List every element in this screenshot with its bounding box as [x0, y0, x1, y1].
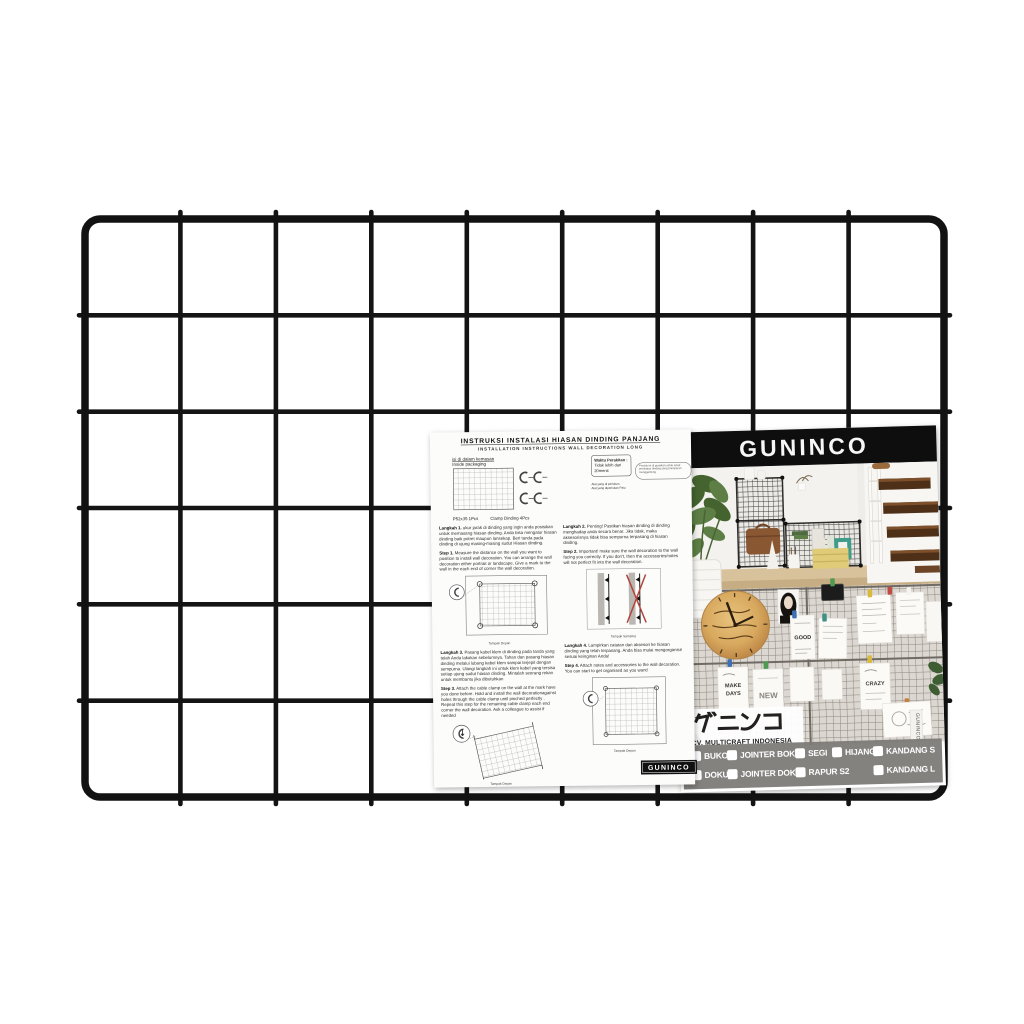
step-1-en: Step 1. Measure the distance on the wall… — [439, 549, 557, 572]
checkbox-icon — [873, 746, 883, 756]
checkbox-icon — [727, 750, 737, 760]
assembly-time-box: Waktu Perakitan : Tidak lebih dari 20men… — [591, 455, 631, 477]
variant-label: RAPUR S2 — [808, 766, 849, 777]
brand-logo-text: GUNINCO — [739, 432, 869, 463]
sheet-header: INSTRUKSI INSTALASI HIASAN DINDING PANJA… — [430, 429, 691, 452]
card-crazy-text: CRAZY — [866, 681, 885, 688]
variant-band: BUKO JOINTER BOKU SEGI HIJANG KANDANG S … — [683, 738, 943, 789]
variant-label: BUKO — [704, 750, 728, 761]
step-2-en-label: Step 2. — [563, 549, 577, 554]
instruction-sheet: INSTRUKSI INSTALASI HIASAN DINDING PANJA… — [430, 429, 695, 787]
step-2-id: Langkah 2. Penting! Pastikan hiasan dind… — [563, 523, 681, 546]
sheet-column-right: Langkah 2. Penting! Pastikan hiasan dind… — [563, 523, 684, 789]
sheet-footer-logo-text: GUNINCO — [642, 762, 695, 774]
sheet-footer-logo: GUNINCO — [641, 760, 697, 775]
step-1-id: Langkah 1. ukur jarak di dinding yang in… — [439, 524, 557, 547]
step-3-en-label: Step 3. — [441, 686, 455, 691]
sheet-title-en: INSTALLATION INSTRUCTIONS WALL DECORATIO… — [430, 444, 691, 452]
tools-line-2: Alat yang diperlukan Palu — [592, 486, 692, 491]
variant-doku: DOKU — [691, 769, 728, 780]
diagram3-caption: Tampak Depan — [442, 781, 560, 786]
variant-label: JOINTER DOKU — [740, 767, 801, 779]
usage-note-oval: Produk ini di gunakan untuk sekat pembat… — [635, 462, 691, 480]
side-tag: GUNINCO — [910, 710, 923, 740]
step-3-en: Step 3. Attach the cable clamp on the wa… — [441, 685, 559, 719]
variant-label: JOINTER BOKU — [740, 748, 801, 760]
assembly-time-value: Tidak lebih dari 20menit — [594, 463, 621, 473]
assembly-time-label: Waktu Perakitan : — [594, 458, 627, 463]
step-4-en: Step 4. Attach notes and accessories to … — [565, 661, 683, 673]
step-1-en-text: Measure the distance on the wall you wan… — [439, 549, 551, 571]
checkbox-icon — [832, 747, 842, 757]
step-3-id: Langkah 3. Pasang kabel klem di dinding … — [440, 649, 558, 683]
variant-label: DOKU — [704, 769, 728, 780]
diagram1-caption: Tampak Depan — [440, 641, 558, 646]
step-4-en-text: Attach notes and accessories to the wall… — [565, 661, 680, 673]
card-days-text: DAYS — [726, 691, 741, 697]
step-3-en-text: Attach the cable clamp on the wall at th… — [441, 685, 556, 718]
sheet-column-left: Langkah 1. ukur jarak di dinding yang in… — [439, 524, 560, 790]
packaging-captions: P52x35 1Pcs Clamp Dinding 4Pcs — [453, 515, 601, 522]
diagram2-caption: Tampak Samping — [564, 634, 682, 639]
checkbox-icon — [727, 769, 737, 779]
tools-note: Alat yang di perlukan Alat yang diperluk… — [591, 481, 691, 491]
room-scene: GOOD — [672, 461, 945, 748]
card-new-text: NEW — [759, 691, 778, 701]
variant-segi: SEGI — [795, 748, 827, 759]
checkbox-icon — [795, 767, 805, 777]
variant-label: SEGI — [808, 748, 827, 759]
lifestyle-photo: GOOD — [672, 461, 945, 748]
checkbox-icon — [873, 765, 883, 775]
diagram-step2: Tampak Samping — [564, 567, 683, 639]
diagram-step4: Tampak Depan — [565, 676, 684, 754]
product-photo: INSTRUKSI INSTALASI HIASAN DINDING PANJA… — [0, 0, 1024, 1024]
brand-photo-card: GUNINCO — [671, 425, 946, 792]
variant-hijang: HIJANG — [832, 746, 876, 757]
packaging-diagram — [452, 465, 568, 512]
packaging-section: isi di dalam kemasan Inside packaging — [452, 454, 692, 521]
variant-rapur-s2: RAPUR S2 — [795, 766, 849, 777]
variant-label: KANDANG L — [886, 764, 935, 775]
note-good-text: GOOD — [794, 635, 811, 641]
clamp-caption: Clamp Dinding 4Pcs — [490, 515, 529, 520]
step-2-en: Step 2. Important! make sure the wall de… — [563, 548, 681, 566]
diagram-step1: Tampak Depan — [440, 574, 559, 646]
diagram-step3: Tampak Depan — [441, 720, 560, 786]
brand-jp-glyphs — [691, 710, 784, 735]
step-1-en-label: Step 1. — [439, 550, 453, 555]
step-4-id: Langkah 4. Lampirkan catatan dan aksesor… — [564, 642, 682, 660]
panel-caption: P52x35 1Pcs — [453, 516, 478, 521]
variant-jointer-boku: JOINTER BOKU — [727, 748, 801, 760]
variant-kandang-s: KANDANG S — [873, 745, 935, 757]
clamp-icons — [520, 472, 542, 503]
step-2-en-text: Important! make sure the wall decoration… — [563, 548, 678, 565]
staircase — [864, 461, 945, 583]
variant-kandang-l: KANDANG L — [873, 764, 935, 776]
step-4-en-label: Step 4. — [565, 663, 579, 668]
variant-label: HIJANG — [845, 746, 876, 757]
checkbox-icon — [795, 748, 805, 758]
variant-label: KANDANG S — [886, 745, 935, 756]
variant-jointer-doku: JOINTER DOKU — [727, 767, 801, 779]
card-make-text: MAKE — [725, 683, 742, 689]
diagram4-caption: Tampak Depan — [566, 749, 684, 754]
side-tag-text: GUNINCO — [914, 713, 921, 740]
